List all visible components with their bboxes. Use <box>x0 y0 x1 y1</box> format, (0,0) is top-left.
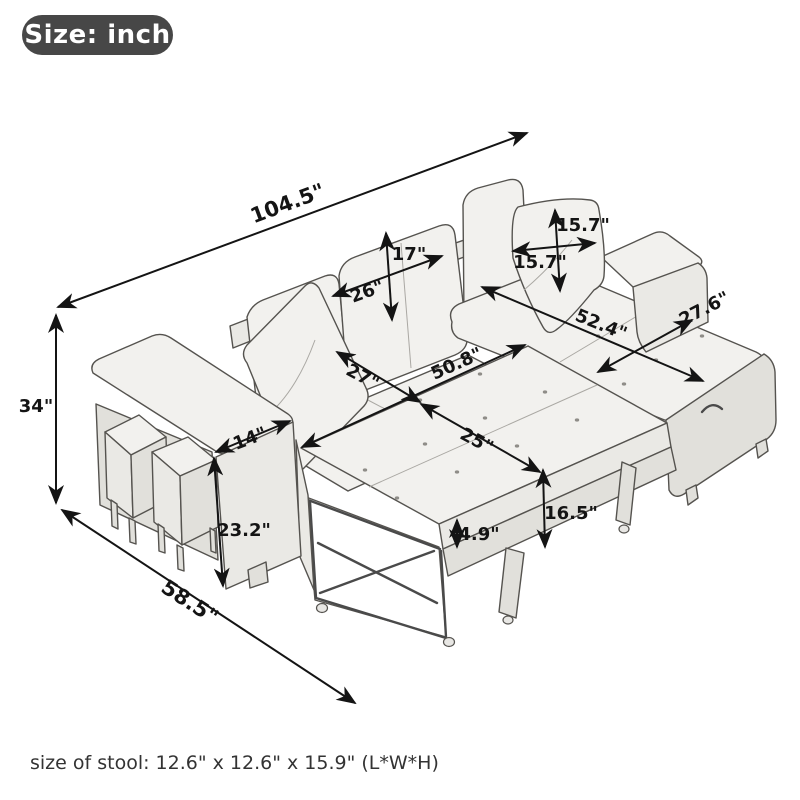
product-dimension-image: 104.5" 34" 58.5" 17" 26" 15.7" 15.7" 52.… <box>0 0 800 800</box>
dim-overall-length-label: 104.5" <box>247 179 328 228</box>
dim-bed-height-label: 16.5" <box>544 503 598 524</box>
sofa-dimension-diagram: 104.5" 34" 58.5" 17" 26" 15.7" 15.7" 52.… <box>0 0 800 800</box>
dim-overall-height-label: 34" <box>19 396 53 417</box>
dim-pillow-height-label: 15.7" <box>556 215 610 236</box>
bed-leg-front <box>499 548 524 618</box>
size-unit-badge-label: Size: inch <box>24 20 170 50</box>
sofa-illustration <box>92 179 776 646</box>
dim-pillow-width-label: 15.7" <box>513 252 567 273</box>
dim-mattress-thickness-label: 4.9" <box>458 524 499 545</box>
dim-back-cushion-height-label: 17" <box>392 244 426 265</box>
dim-overall-depth-label: 58.5" <box>157 575 223 629</box>
stool-size-note: size of stool: 12.6" x 12.6" x 15.9" (L*… <box>30 752 439 774</box>
size-unit-badge: Size: inch <box>22 15 173 55</box>
dim-arm-height-label: 23.2" <box>217 520 271 541</box>
